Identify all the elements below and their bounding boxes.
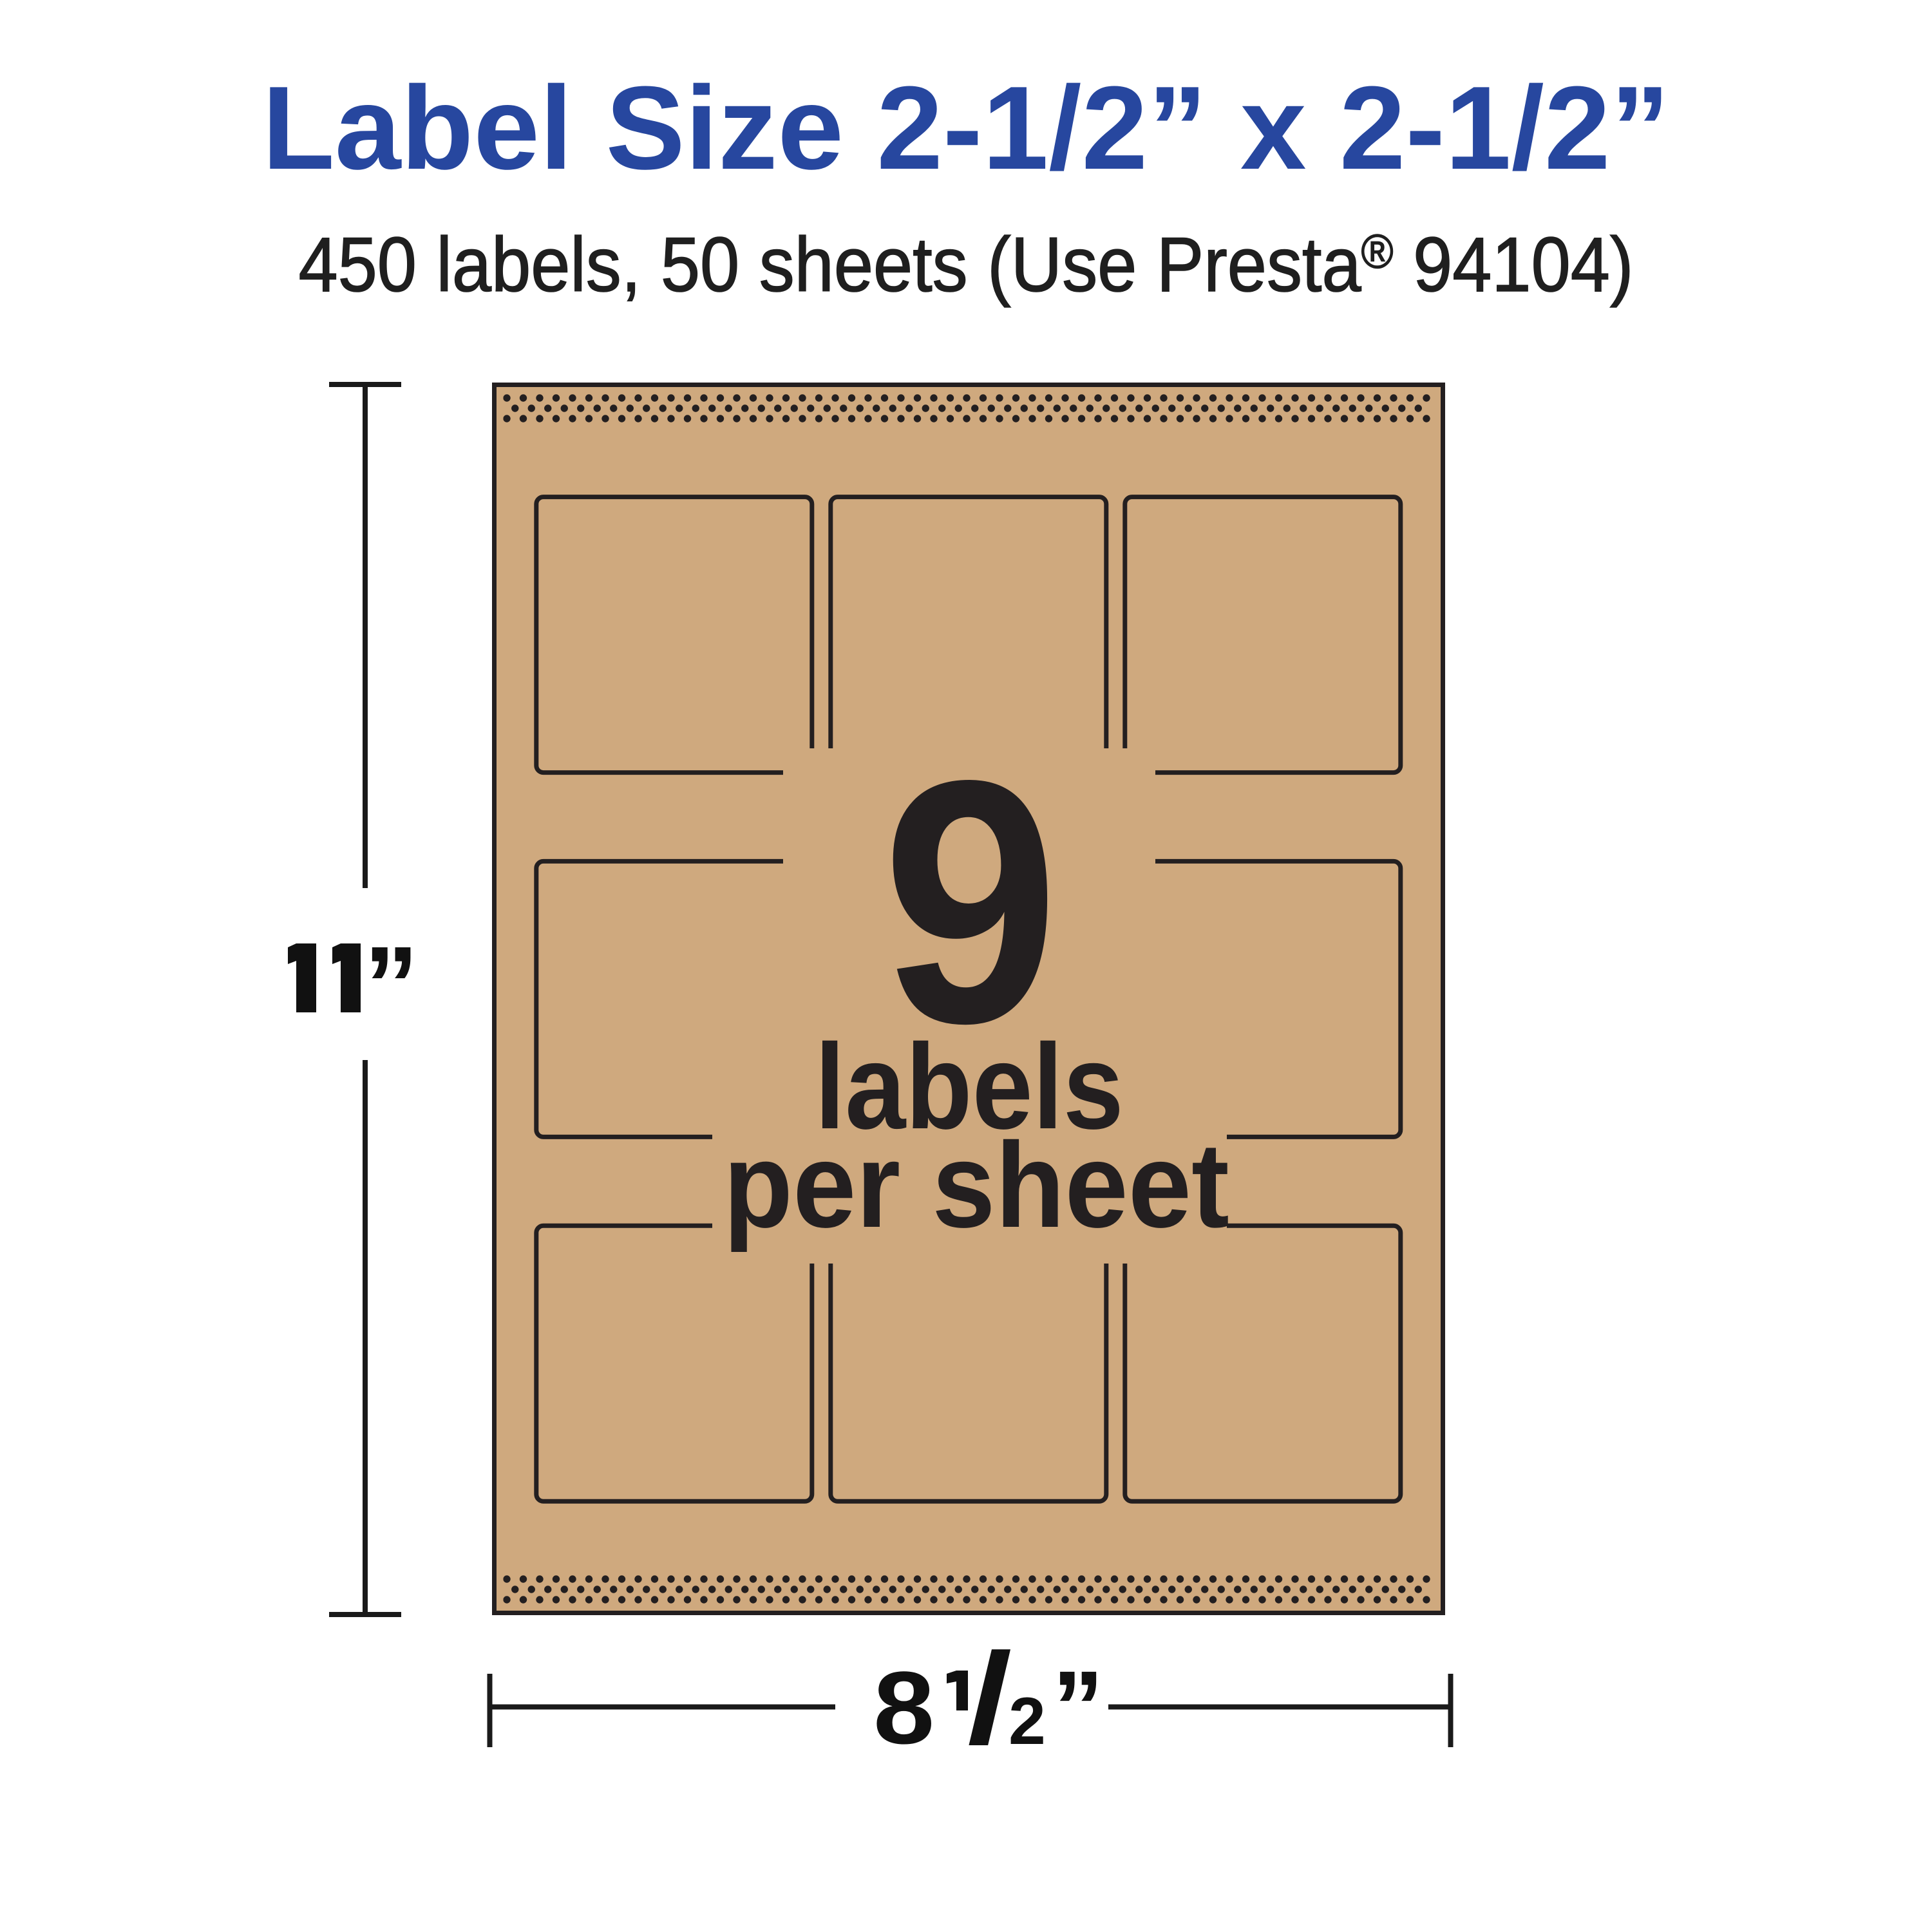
- svg-text:/: /: [967, 1626, 1012, 1770]
- svg-text:”: ”: [364, 924, 419, 1046]
- svg-text:Label Size 2-1/2” x 2-1/2”: Label Size 2-1/2” x 2-1/2”: [262, 61, 1670, 194]
- svg-text:8: 8: [873, 1651, 934, 1766]
- svg-text:per sheet: per sheet: [723, 1117, 1229, 1253]
- svg-text:450 labels, 50 sheets (Use Pre: 450 labels, 50 sheets (Use Presta® 94104…: [299, 222, 1634, 308]
- svg-text:2: 2: [1009, 1684, 1046, 1759]
- svg-text:”: ”: [1052, 1649, 1104, 1765]
